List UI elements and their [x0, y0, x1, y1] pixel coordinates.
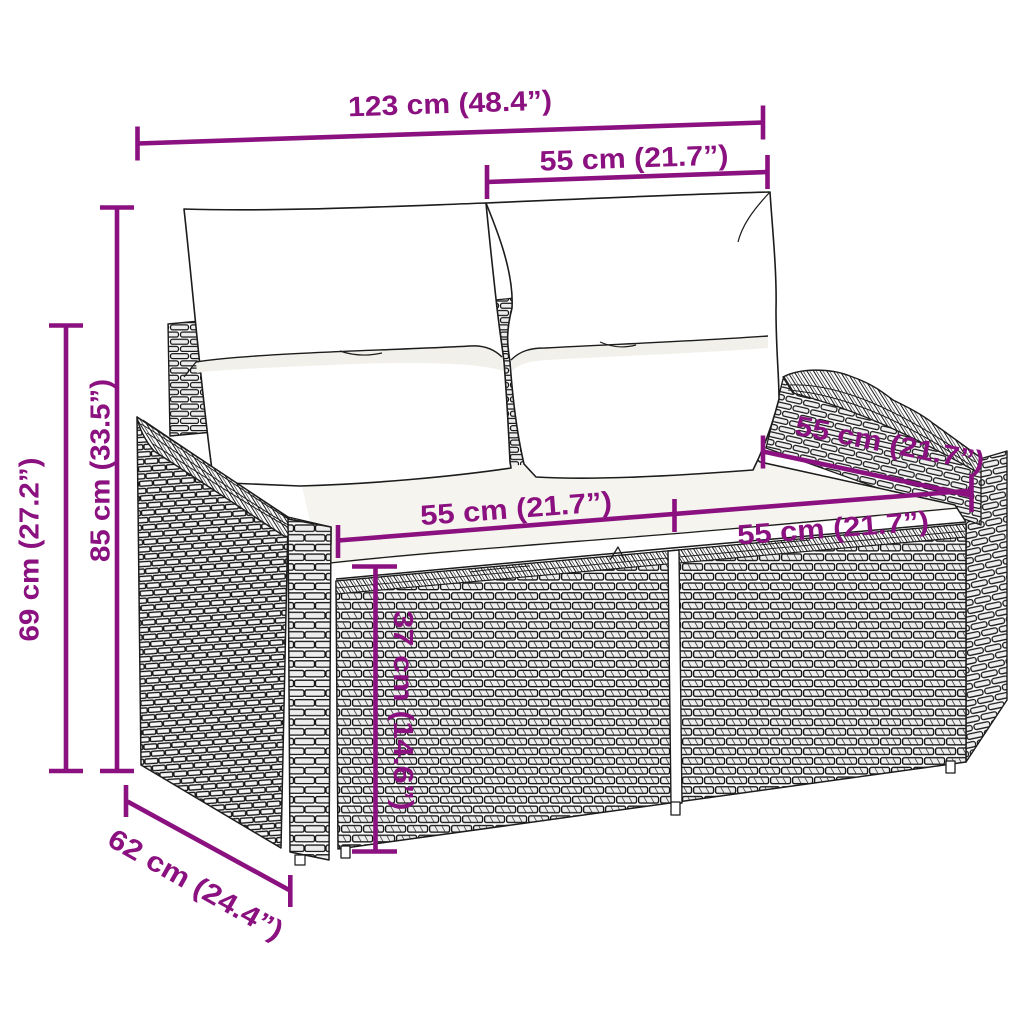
- svg-text:37 cm (14.6”): 37 cm (14.6”): [388, 611, 419, 811]
- svg-text:55 cm (21.7”): 55 cm (21.7”): [539, 139, 729, 176]
- svg-text:69 cm (27.2”): 69 cm (27.2”): [14, 458, 45, 642]
- svg-text:85 cm (33.5”): 85 cm (33.5”): [85, 379, 116, 562]
